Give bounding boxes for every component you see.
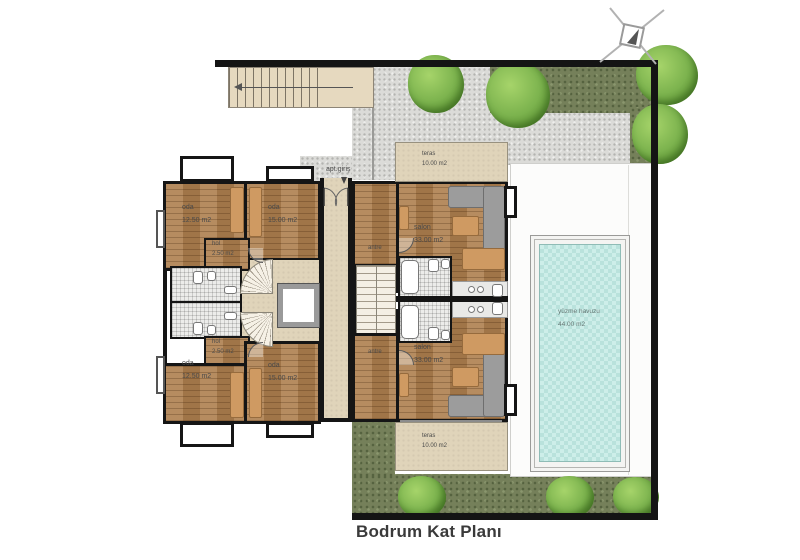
terrace-top: teras 10.00 m2	[395, 142, 508, 182]
gravel-path-strip	[352, 163, 396, 180]
wardrobe	[249, 187, 262, 237]
elevator-shaft	[278, 284, 319, 327]
coffee-table	[452, 216, 479, 236]
bush	[546, 476, 594, 518]
entry-double-door	[322, 187, 350, 209]
bay-window	[180, 422, 234, 447]
floor-plan-canvas: yüzme havuzu 44.00 m2	[0, 0, 800, 560]
terrace-bottom-label: teras 10.00 m2	[422, 433, 447, 450]
wardrobe	[230, 187, 244, 233]
dining-table	[462, 333, 505, 355]
room-name: oda	[182, 360, 194, 367]
toilet	[428, 259, 439, 272]
toilet	[193, 322, 203, 335]
room-name: salon	[414, 344, 431, 351]
radiator	[224, 312, 237, 320]
terrace-name: teras	[422, 433, 435, 439]
boundary-wall-top	[215, 60, 658, 67]
bathtub	[401, 305, 419, 339]
u-staircase	[356, 265, 396, 335]
corridor	[320, 178, 352, 422]
room-label-oda-top-left: oda 12.50 m2	[182, 204, 211, 225]
kitchen-sink	[477, 286, 484, 293]
toilet	[193, 271, 203, 284]
tree	[486, 62, 550, 128]
grass-area-terrace-side	[352, 418, 395, 476]
tree	[632, 104, 688, 164]
terrace-top-label: teras 10.00 m2	[422, 151, 447, 168]
room-label-oda-bottom-right: oda 15.00 m2	[268, 362, 297, 383]
bay-window	[266, 422, 314, 438]
grass-area-bottom	[352, 474, 652, 516]
room-area: 33.00 m2	[414, 237, 443, 245]
kitchen-sink	[477, 306, 484, 313]
left-arrow-icon	[234, 83, 242, 91]
wardrobe	[249, 368, 262, 418]
tv-unit	[399, 206, 409, 230]
room-name: oda	[268, 362, 280, 369]
terrace-name: teras	[422, 151, 435, 157]
room-label-antre-top: antre	[368, 245, 382, 252]
room-label-salon-bottom: salon 33.00 m2	[414, 344, 443, 365]
window	[156, 210, 165, 248]
room-antre-top	[352, 181, 400, 267]
landing-wall	[372, 108, 374, 180]
window	[156, 356, 165, 394]
entry-label: apt.giriş	[326, 166, 351, 174]
coffee-table	[452, 367, 479, 387]
pool-name: yüzme havuzu	[558, 308, 600, 315]
toilet	[428, 327, 439, 340]
dining-table	[462, 248, 505, 270]
room-name: antre	[368, 245, 382, 251]
stair-direction-line	[241, 87, 353, 88]
kitchen-sink	[468, 306, 475, 313]
room-label-oda-top-right: oda 15.00 m2	[268, 204, 297, 225]
terrace-area: 10.00 m2	[422, 161, 447, 168]
room-name: hol	[212, 339, 220, 345]
terrace-area: 10.00 m2	[422, 443, 447, 450]
room-area: 12.50 m2	[182, 217, 211, 225]
sink	[441, 330, 450, 340]
party-wall	[396, 296, 508, 302]
stove	[492, 302, 503, 315]
kitchen-sink	[468, 286, 475, 293]
radiator	[224, 286, 237, 294]
tv-unit	[399, 373, 409, 397]
sink	[207, 271, 216, 281]
pool-label: yüzme havuzu 44.00 m2	[558, 308, 600, 329]
room-name: hol	[212, 241, 220, 247]
stove	[492, 284, 503, 297]
stair-divider	[376, 266, 377, 334]
room-name: oda	[182, 204, 194, 211]
bay-window	[504, 186, 517, 218]
room-label-antre-bottom: antre	[368, 349, 382, 356]
pool-area: 44.00 m2	[558, 321, 600, 328]
room-area: 2.50 m2	[212, 251, 234, 258]
bay-window	[504, 384, 517, 416]
sink	[207, 325, 216, 335]
plan-title: Bodrum Kat Planı	[356, 522, 502, 542]
room-antre-bottom	[352, 333, 400, 422]
room-area: 33.00 m2	[414, 357, 443, 365]
room-name: oda	[268, 204, 280, 211]
room-label-salon-top: salon 33.00 m2	[414, 224, 443, 245]
room-name: salon	[414, 224, 431, 231]
bay-window	[266, 166, 314, 182]
room-area: 2.50 m2	[212, 349, 234, 356]
swimming-pool	[539, 244, 621, 462]
exterior-staircase	[228, 67, 374, 108]
room-area: 12.50 m2	[182, 373, 211, 381]
wardrobe	[230, 372, 244, 418]
room-label-hol-bottom: hol 2.50 m2	[212, 339, 234, 356]
bathtub	[401, 260, 419, 294]
room-label-hol-top: hol 2.50 m2	[212, 241, 234, 258]
bathroom-top-left	[170, 266, 242, 304]
boundary-wall-right	[651, 60, 658, 520]
bay-window	[180, 156, 234, 182]
room-name: antre	[368, 349, 382, 355]
north-arrow-icon	[596, 4, 670, 70]
sofa	[483, 186, 505, 254]
bush	[398, 476, 446, 518]
room-area: 15.00 m2	[268, 375, 297, 383]
down-arrow-icon	[341, 177, 347, 184]
room-area: 15.00 m2	[268, 217, 297, 225]
terrace-bottom: teras 10.00 m2	[395, 422, 508, 471]
room-label-oda-bottom-left: oda 12.50 m2	[182, 360, 211, 381]
sofa	[483, 349, 505, 417]
boundary-wall-bottom	[352, 513, 658, 520]
sink	[441, 259, 450, 269]
bathroom-bottom-left	[170, 301, 242, 339]
